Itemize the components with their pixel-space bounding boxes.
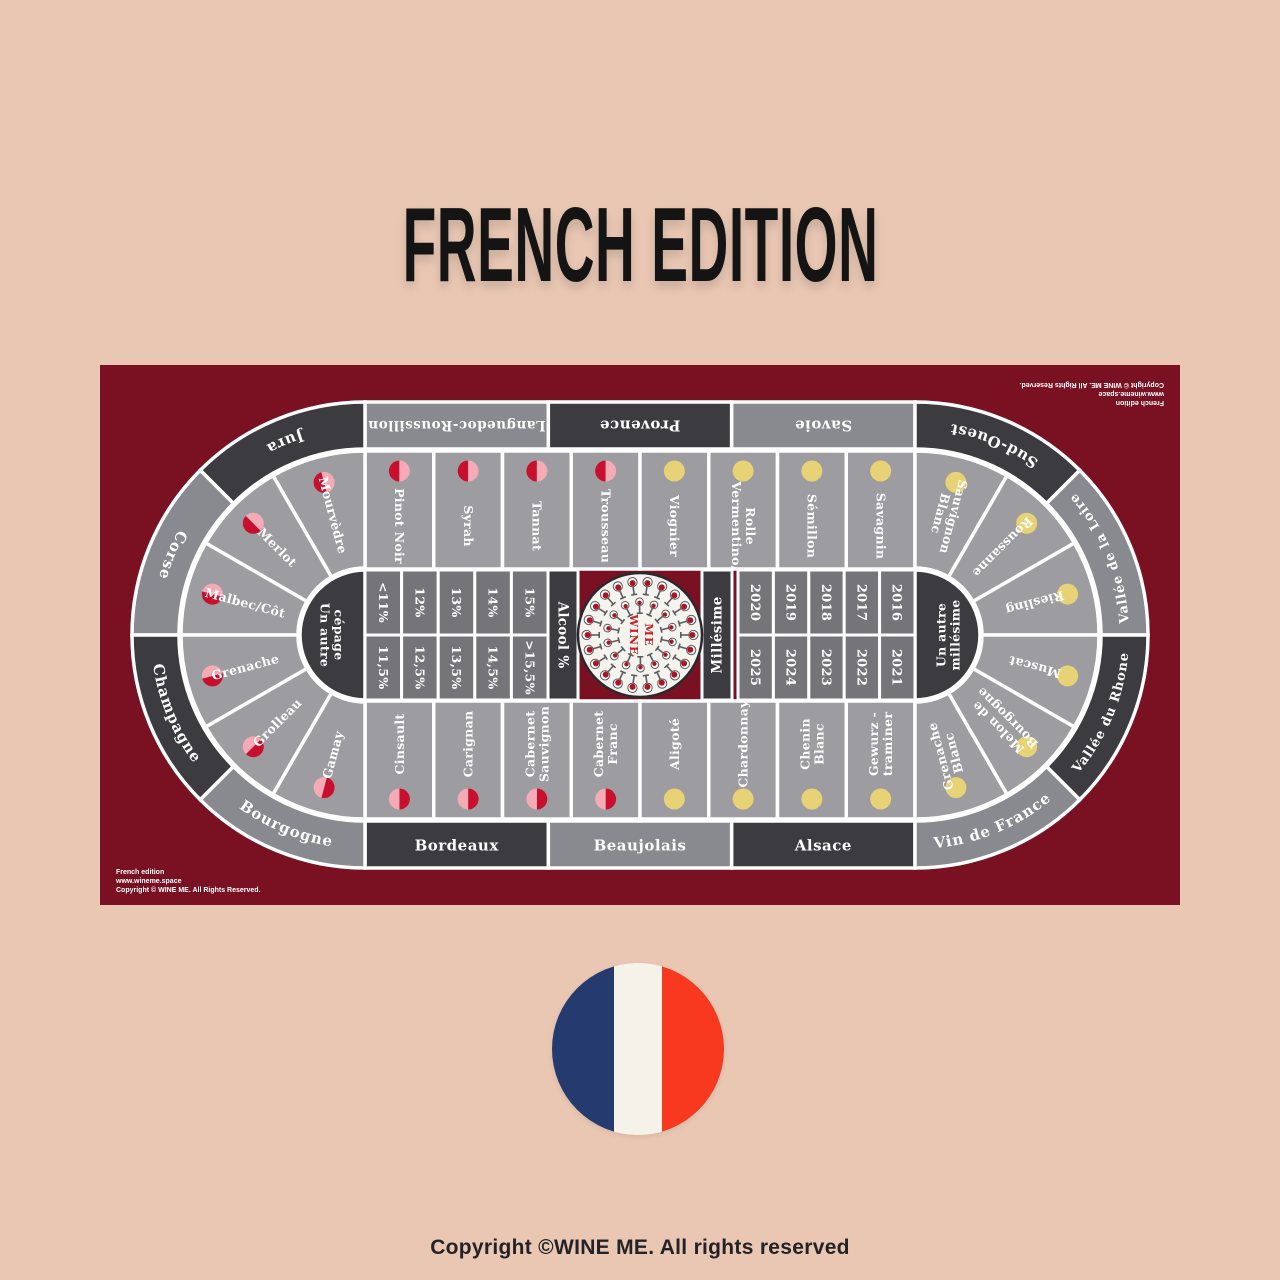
credit-line: French edition (116, 869, 164, 876)
other-vintage-label: millésime (947, 599, 962, 670)
alcohol-value: 13,5% (449, 646, 464, 690)
grape-cell-vermentino-rolle-label: Rolle (743, 507, 758, 545)
alcohol-cell-9: >15,5% (511, 635, 548, 700)
center-logo-circle: WINEME (578, 573, 702, 697)
other-grape-label: cépage (332, 610, 347, 661)
wine-board-svg: Languedoc-RoussillonProvenceSavoieBordea… (100, 365, 1180, 905)
grape-cell-cabernet-franc: CabernetFranc (571, 701, 640, 819)
year-value: 2017 (853, 584, 868, 621)
alcohol-value: 15% (522, 587, 537, 617)
region-label-languedoc-roussillon: Languedoc-Roussillon (368, 417, 546, 433)
page-title: FRENCH EDITION (0, 192, 1280, 298)
year-cell-2019: 2019 (773, 570, 808, 635)
grape-cell-gewurz-traminer: Gewurz -traminer (846, 701, 915, 819)
logo-wine: WINE (627, 613, 641, 656)
french-flag (552, 963, 724, 1135)
grape-cell-cabernet-franc-label: Franc (605, 723, 620, 765)
grape-cell-pinot-noir-label: Pinot Noir (392, 488, 407, 564)
grape-cell-carignan: Carignan (434, 701, 503, 819)
red-wine-token-icon (526, 789, 547, 810)
logo-me: ME (642, 623, 656, 647)
region-label-provence: Provence (599, 416, 680, 434)
grape-cell-syrah-label: Syrah (461, 505, 476, 547)
page-title-text: FRENCH EDITION (402, 192, 878, 298)
region-label-alsace: Alsace (794, 836, 852, 854)
year-value: 2018 (818, 584, 833, 621)
alcohol-band-label: Alcool % (554, 601, 570, 669)
alcohol-cell-7: 13,5% (438, 635, 475, 700)
wine-game-board: Languedoc-RoussillonProvenceSavoieBordea… (100, 365, 1180, 905)
grape-cell-cinsault: Cinsault (365, 701, 434, 819)
year-cell-2022: 2022 (844, 635, 879, 700)
grape-cell-gewurz-traminer-label: Gewurz - (866, 712, 881, 776)
white-wine-token-icon (801, 461, 822, 482)
grape-cell-vermentino-rolle: Vermentino/Rolle (709, 451, 778, 571)
region-label-bordeaux: Bordeaux (415, 836, 500, 854)
alcohol-cell-8: 14,5% (475, 635, 512, 700)
red-wine-token-icon (595, 789, 616, 810)
red-wine-token-icon (526, 461, 547, 482)
credit-line: Copyright © WINE ME. All Rights Reserved… (1019, 381, 1164, 389)
year-cell-2023: 2023 (809, 635, 844, 700)
white-wine-token-icon (664, 461, 685, 482)
grape-cell-cinsault-label: Cinsault (392, 714, 407, 775)
grape-cell-carignan-label: Carignan (461, 711, 476, 778)
year-cell-2017: 2017 (844, 570, 879, 635)
grape-cell-pinot-noir: Pinot Noir (365, 451, 434, 569)
year-cell-2021: 2021 (880, 635, 915, 700)
flag-stripe-white (614, 963, 662, 1135)
grape-cell-chardonnay: Chardonnay (709, 700, 778, 819)
grape-cell-chenin-blanc-label: Chenin (797, 718, 812, 770)
vintage-band: Millésime (702, 570, 732, 700)
region-label-savoie: Savoie (795, 416, 853, 434)
grape-cell-tannat: Tannat (503, 451, 572, 569)
alcohol-cell-2: 13% (438, 570, 475, 635)
alcohol-value: >15,5% (522, 640, 537, 695)
red-wine-token-icon (458, 789, 479, 810)
credit-line: www.wineme.space (115, 878, 182, 885)
year-value: 2024 (783, 649, 798, 686)
credit-line: Copyright © WINE ME. All Rights Reserved… (116, 886, 261, 894)
white-wine-token-icon (733, 789, 754, 810)
red-wine-token-icon (389, 789, 410, 810)
year-cell-2020: 2020 (738, 570, 773, 635)
year-cell-2025: 2025 (738, 635, 773, 700)
red-wine-token-icon (389, 461, 410, 482)
white-wine-token-icon (801, 789, 822, 810)
alcohol-value: 14% (486, 587, 501, 617)
white-wine-token-icon (733, 461, 754, 482)
grape-cell-gewurz-traminer-label: traminer (880, 712, 895, 777)
alcohol-value: 13% (449, 587, 464, 617)
alcohol-cell-4: 15% (511, 570, 548, 635)
grape-cell-aligot-label: Aligoté (667, 718, 682, 771)
year-cell-2018: 2018 (809, 570, 844, 635)
alcohol-value: 14,5% (486, 646, 501, 690)
credit-line: www.wineme.space (1098, 390, 1165, 397)
grape-cell-s-millon: Sémillon (778, 451, 847, 569)
grape-cell-savagnin: Savagnin (846, 451, 915, 569)
grape-cell-s-millon-label: Sémillon (805, 494, 820, 558)
alcohol-value: 11,5% (376, 646, 391, 690)
alcohol-band: Alcool % (548, 570, 578, 700)
alcohol-value: 12% (413, 587, 428, 617)
grape-cell-syrah: Syrah (434, 451, 503, 569)
region-label-beaujolais: Beaujolais (594, 836, 687, 854)
grape-cell-trousseau: Trousseau (571, 451, 640, 569)
grape-cell-aligot: Aligoté (640, 701, 709, 819)
grape-cell-viognier-label: Viognier (667, 494, 682, 557)
year-value: 2019 (783, 584, 798, 621)
year-cell-2024: 2024 (773, 635, 808, 700)
grape-cell-trousseau-label: Trousseau (598, 489, 613, 563)
alcohol-cell-5: 11,5% (365, 635, 402, 700)
grape-cell-chardonnay-label: Chardonnay (736, 700, 751, 788)
year-value: 2020 (747, 584, 762, 621)
vintage-band-label: Millésime (710, 596, 726, 673)
grape-cell-chenin-blanc: CheninBlanc (778, 701, 847, 819)
other-grape-label: Un autre (318, 603, 333, 667)
other-vintage-label: Un autre (933, 603, 948, 667)
alcohol-cell-0: <11% (365, 570, 402, 635)
grape-cell-cabernet-sauvignon-label: Sauvignon (536, 706, 551, 782)
year-value: 2021 (889, 649, 904, 686)
year-value: 2025 (747, 649, 762, 686)
alcohol-cell-1: 12% (402, 570, 439, 635)
grape-cell-cabernet-sauvignon-label: Cabernet (522, 711, 537, 778)
year-value: 2022 (853, 649, 868, 686)
year-cell-2016: 2016 (880, 570, 915, 635)
grape-cell-tannat-label: Tannat (530, 501, 545, 551)
credit-line: French edition (1116, 399, 1164, 406)
alcohol-cell-6: 12,5% (402, 635, 439, 700)
flag-stripe-red (662, 963, 724, 1135)
grape-cell-cabernet-franc-label: Cabernet (591, 711, 606, 778)
white-wine-token-icon (664, 789, 685, 810)
white-wine-token-icon (870, 789, 891, 810)
grape-cell-cabernet-sauvignon: CabernetSauvignon (503, 701, 572, 819)
footer-copyright: Copyright ©WINE ME. All rights reserved (0, 1236, 1280, 1260)
flag-stripe-blue (552, 963, 614, 1135)
white-wine-token-icon (870, 461, 891, 482)
grape-cell-vermentino-rolle-label: Vermentino/ (729, 480, 744, 570)
grape-cell-chenin-blanc-label: Blanc (811, 723, 826, 765)
red-wine-token-icon (595, 461, 616, 482)
grape-cell-savagnin-label: Savagnin (873, 493, 888, 560)
red-wine-token-icon (458, 461, 479, 482)
year-value: 2016 (889, 584, 904, 621)
grape-cell-viognier: Viognier (640, 451, 709, 569)
alcohol-value: <11% (376, 582, 391, 623)
alcohol-value: 12,5% (413, 646, 428, 690)
alcohol-cell-3: 14% (475, 570, 512, 635)
year-value: 2023 (818, 649, 833, 686)
